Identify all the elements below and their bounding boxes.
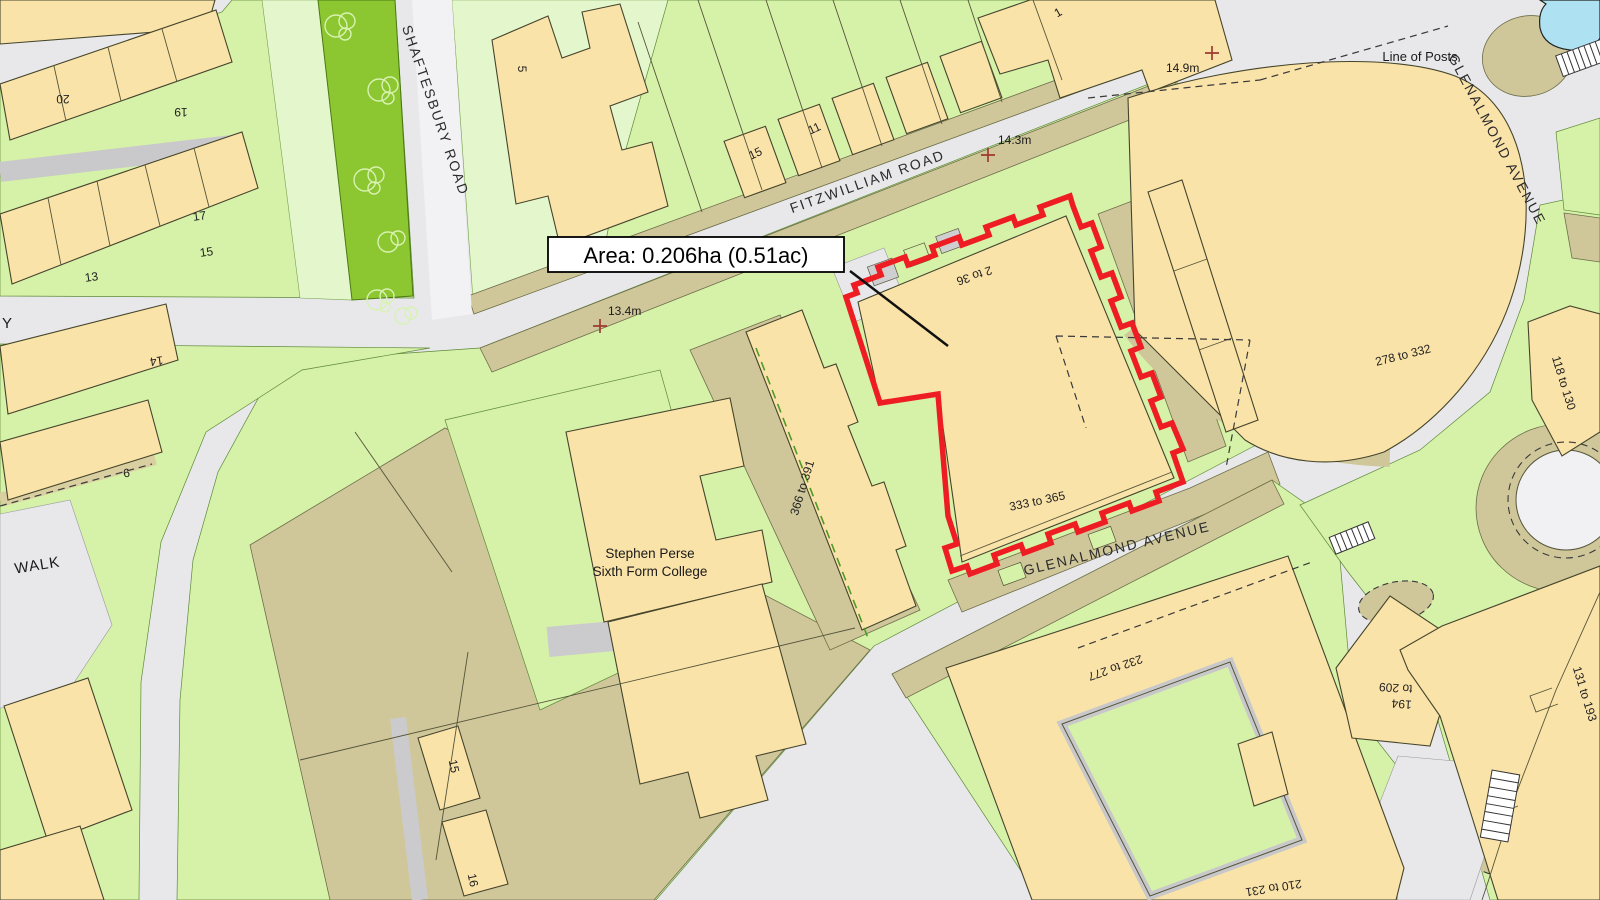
spot-height-13-4: 13.4m [608, 304, 641, 318]
range-194-line1: 194 [1391, 696, 1412, 711]
house-number-20: 20 [56, 92, 70, 106]
house-number-13: 13 [84, 269, 99, 285]
map-canvas: Area: 0.206ha (0.51ac) SHAFTESBURY ROAD … [0, 0, 1600, 900]
house-number-17: 17 [192, 208, 207, 224]
area-label-text: Area: 0.206ha (0.51ac) [583, 243, 808, 268]
college-label-line2: Sixth Form College [593, 564, 708, 579]
house-number-5: 5 [515, 66, 529, 73]
house-number-14: 14 [149, 353, 164, 369]
spot-height-14-9: 14.9m [1166, 61, 1199, 75]
line-of-posts-label: Line of Posts [1382, 49, 1458, 64]
range-194-line2: to 209 [1378, 680, 1413, 696]
site-plan-map: Area: 0.206ha (0.51ac) SHAFTESBURY ROAD … [0, 0, 1600, 900]
college-label-line1: Stephen Perse [605, 546, 694, 561]
street-name-partial-y: Y [2, 315, 12, 332]
house-number-19: 19 [174, 105, 188, 119]
house-number-15a: 15 [199, 244, 214, 260]
spot-height-14-3: 14.3m [998, 133, 1031, 147]
